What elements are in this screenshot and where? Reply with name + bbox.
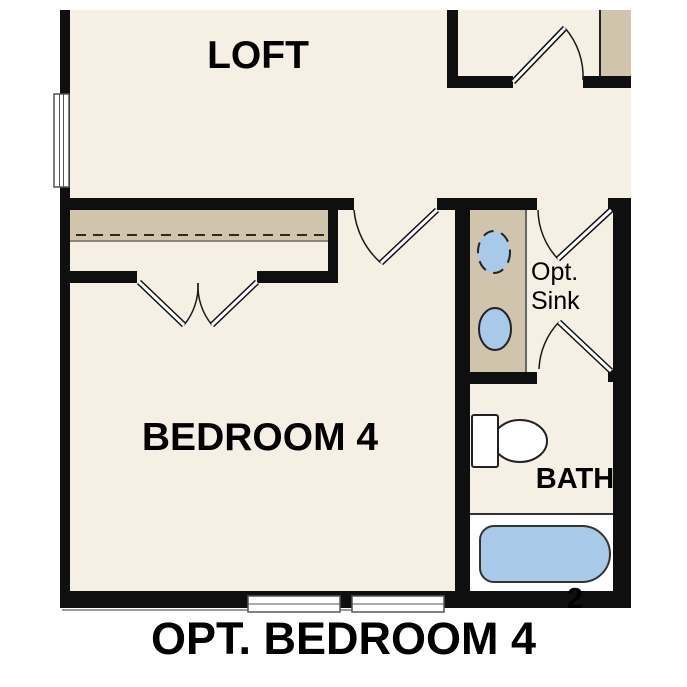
bath2-label-line2: 2 <box>520 579 630 619</box>
bath-divider-wall <box>455 210 470 608</box>
opt-sink-note-line1: Opt. <box>531 258 601 287</box>
floor-plan-canvas: LOFT BEDROOM 4 BATH 2 Opt. Sink OPT. BED… <box>0 0 687 687</box>
vanity-cabinet <box>470 210 527 372</box>
upper-right-closet-strip <box>599 10 631 76</box>
opt-sink-note-line2: Sink <box>531 287 601 316</box>
loft-label: LOFT <box>158 36 358 76</box>
opt-sink-note: Opt. Sink <box>531 258 601 316</box>
mid-wall-right <box>437 198 537 210</box>
upper-right-horizontal-wall-right <box>583 76 631 88</box>
mid-wall-left <box>60 198 354 210</box>
plan-caption: OPT. BEDROOM 4 <box>0 616 687 662</box>
bedroom4-label: BEDROOM 4 <box>110 418 410 458</box>
closet-front-wall-right <box>257 271 338 283</box>
closet-front-wall-left <box>60 271 137 283</box>
window-sill-line <box>62 609 444 611</box>
left-wall <box>60 10 70 608</box>
upper-right-horizontal-wall-left <box>447 76 513 88</box>
bath2-label-line1: BATH <box>520 459 630 499</box>
closet-interior <box>70 210 328 242</box>
mid-wall-stub-right <box>608 198 631 212</box>
